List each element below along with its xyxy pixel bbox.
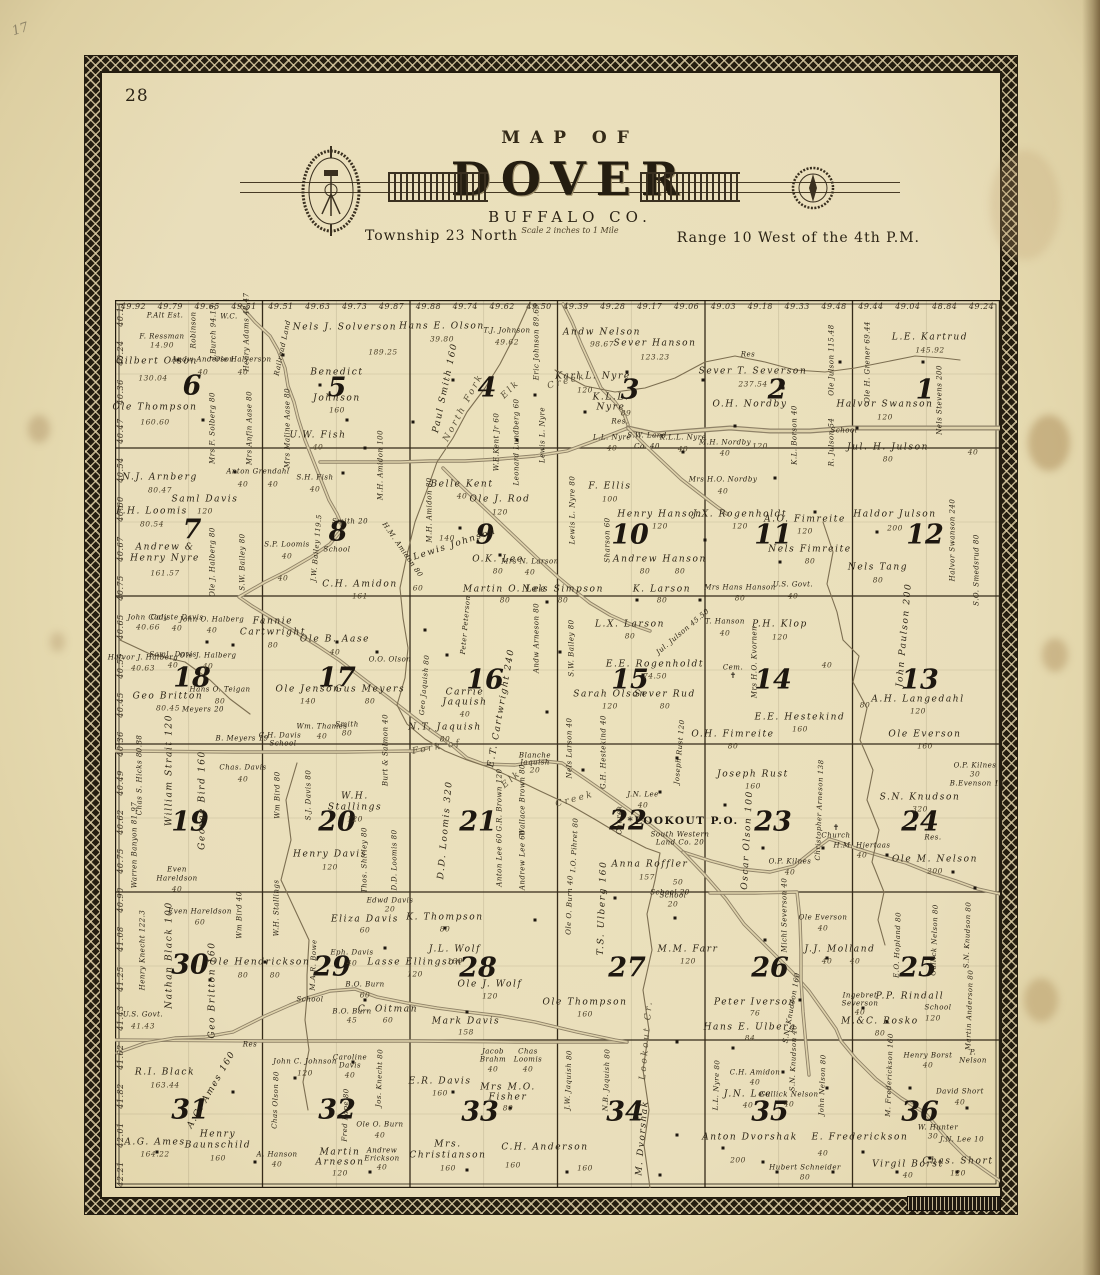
parcel-owner-label: Ole B. Aase: [300, 636, 370, 645]
parcel-owner-label: Mrs Hans Hanson: [704, 585, 776, 592]
acreage-label: 40.66: [136, 623, 160, 631]
parcel-owner-label: Hans E. Olson: [399, 323, 485, 332]
map-of-text: MAP OF: [501, 128, 639, 148]
parcel-owner-label: U.W. Fish: [290, 432, 347, 441]
parcel-owner-label: Henry Borst: [904, 1053, 953, 1060]
parcel-owner-label: Mrs Maline Aase 80: [285, 388, 292, 468]
acreage-label: 160: [792, 725, 808, 733]
acreage-label: 120: [910, 707, 926, 715]
edge-measurement: 40.75: [117, 575, 125, 600]
building-dot: [376, 651, 379, 654]
parcel-owner-label: J.J. Molland: [805, 946, 876, 955]
parcel-owner-label: R. Julson 54: [829, 418, 836, 467]
paper-stain: [990, 150, 1060, 260]
building-dot: [699, 599, 702, 602]
edge-measurement: 49.04: [895, 303, 920, 311]
acreage-label: 80: [873, 576, 884, 584]
acreage-label: 20: [668, 900, 679, 908]
acreage-label: 40: [903, 1171, 914, 1179]
parcel-owner-label: P.: [970, 1050, 977, 1057]
parcel-owner-label: A. Hanson: [256, 1152, 297, 1159]
parcel-owner-label: Ole Thompson: [543, 999, 628, 1008]
acreage-label: 41.43: [131, 1022, 155, 1030]
acreage-label: 80: [503, 1104, 514, 1112]
acreage-label: 120: [752, 442, 768, 450]
building-dot: [582, 769, 585, 772]
parcel-owner-label: Henry Nyre: [130, 555, 200, 564]
parcel-owner-label: Hubert Schneider: [769, 1165, 841, 1172]
parcel-owner-label: John O. Halberg: [180, 617, 245, 624]
acreage-label: 160: [505, 1161, 521, 1169]
acreage-label: 120: [482, 992, 498, 1000]
parcel-owner-label: Nels Simpson: [522, 586, 604, 595]
building-dot: [896, 1171, 899, 1174]
acreage-label: 40: [238, 775, 249, 783]
building-dot: [676, 1041, 679, 1044]
edge-measurement: 41.08: [117, 927, 125, 952]
acreage-label: 40: [784, 1100, 795, 1108]
parcel-owner-label: K. Larson: [633, 586, 691, 595]
edge-measurement: 41.62: [117, 1044, 125, 1069]
parcel-owner-label: P.H. Klop: [752, 621, 808, 630]
parcel-owner-label: Andrew Lee 60: [520, 830, 527, 890]
edge-measurement: 49.06: [674, 303, 699, 311]
parcel-owner-label: Haldor Julson: [853, 511, 936, 520]
acreage-label: 40: [720, 629, 731, 637]
acreage-label: 120: [680, 957, 696, 965]
building-dot: [814, 511, 817, 514]
parcel-owner-label: Nels Stevens 200: [937, 365, 944, 435]
scanned-atlas-page: 28 17 MAP OF DOVER BUFFALO CO.: [0, 0, 1100, 1275]
edge-measurement: 49.03: [711, 303, 736, 311]
acreage-label: 130.04: [138, 374, 167, 382]
parcel-owner-label: E.E. Hestekind: [755, 714, 846, 723]
parcel-owner-label: L.E. Kartrud: [892, 334, 968, 343]
parcel-owner-label: Nels Tang: [848, 564, 908, 573]
building-dot: [799, 999, 802, 1002]
parcel-owner-label: Ole Thompson: [113, 404, 198, 413]
acreage-label: 161.57: [150, 569, 179, 577]
parcel-owner-label: Warren Banyon 81.97: [132, 802, 139, 889]
building-dot: [459, 527, 462, 530]
parcel-owner-label: Ole J. Wolf: [458, 981, 523, 990]
parcel-owner-label: Robinson: [191, 311, 198, 348]
acreage-label: 60: [383, 1016, 394, 1024]
parcel-owner-label: Mrs M.O.: [480, 1084, 536, 1093]
building-dot: [774, 477, 777, 480]
parcel-owner-label: Baunschild: [185, 1142, 252, 1151]
paper-stain: [50, 632, 65, 652]
parcel-owner-label: Res.: [924, 835, 941, 842]
section-number: 32: [318, 1097, 356, 1124]
building-dot: [764, 939, 767, 942]
parcel-owner-label: K. Thompson: [406, 914, 483, 923]
parcel-owner-label: O.O. Olson: [369, 657, 412, 664]
parcel-owner-label: Hans O. Teigan: [189, 687, 250, 694]
parcel-owner-label: Meyers 20: [182, 707, 224, 714]
building-dot: [636, 1117, 639, 1120]
title-block: MAP OF DOVER BUFFALO CO. Townsh: [150, 100, 990, 270]
parcel-owner-label: Ole M. Nelson: [892, 856, 978, 865]
parcel-owner-label: Andrew: [367, 1148, 398, 1155]
parcel-owner-label: Mrs N. Larson: [501, 559, 558, 566]
section-number: 10: [611, 522, 649, 549]
paper-stain: [1042, 638, 1068, 672]
acreage-label: 163.44: [150, 1081, 179, 1089]
acreage-label: 120: [772, 633, 788, 641]
acreage-label: 80: [493, 567, 504, 575]
acreage-label: 20: [385, 905, 396, 913]
acreage-label: 40: [317, 732, 328, 740]
parcel-owner-label: George Bird 160: [199, 750, 208, 850]
parcel-owner-label: Chas. Davis: [219, 765, 266, 772]
parcel-owner-label: S.J. Davis 80: [306, 770, 313, 821]
ornament-bar-left: [388, 172, 488, 202]
acreage-label: 14.90: [150, 341, 174, 349]
building-dot: [412, 421, 415, 424]
acreage-label: 160: [917, 742, 933, 750]
acreage-label: 40: [172, 624, 183, 632]
parcel-owner-label: P.P. Rindall: [876, 993, 945, 1002]
parcel-owner-label: C.H. Anderson: [501, 1144, 588, 1153]
parcel-owner-label: Henry Knecht 122.3: [140, 910, 147, 991]
acreage-label: 60: [360, 991, 371, 999]
building-dot: [722, 1147, 725, 1150]
parcel-owner-label: Chas: [518, 1049, 538, 1056]
acreage-label: 80: [640, 567, 651, 575]
parcel-owner-label: Johnson: [313, 395, 361, 404]
parcel-owner-label: Res: [741, 352, 756, 359]
parcel-owner-label: M.H. Amidon 100: [378, 430, 385, 500]
acreage-label: 40: [850, 957, 861, 965]
acreage-label: 40: [785, 868, 796, 876]
acreage-label: 80: [728, 742, 739, 750]
acreage-label: 40: [268, 480, 279, 488]
acreage-label: 40: [347, 959, 358, 967]
scale-label: Scale 2 inches to 1 Mile: [521, 226, 618, 235]
acreage-label: 80.45: [156, 704, 180, 712]
acreage-label: 160: [432, 1089, 448, 1097]
edge-measurement: 49.28: [600, 303, 625, 311]
building-dot: [452, 1091, 455, 1094]
parcel-owner-label: Church: [821, 833, 850, 840]
parcel-owner-label: Halvor Swanson 240: [950, 499, 957, 582]
parcel-owner-label: G.H. Hestekind 40: [601, 715, 608, 789]
edge-measurement: 40.90: [117, 888, 125, 913]
acreage-label: 40: [377, 1163, 388, 1171]
acreage-label: 157: [639, 873, 655, 881]
acreage-label: 160: [447, 957, 463, 965]
acreage-label: 40: [638, 801, 649, 809]
acreage-label: 40: [788, 592, 799, 600]
acreage-label: 40: [272, 1160, 283, 1168]
acreage-label: 80: [268, 641, 279, 649]
building-dot: [369, 1171, 372, 1174]
building-dot: [762, 1161, 765, 1164]
acreage-label: 40: [198, 368, 209, 376]
parcel-owner-label: School: [297, 997, 324, 1004]
building-dot: [584, 411, 587, 414]
parcel-owner-label: Sharson 60: [605, 517, 612, 562]
parcel-owner-label: M.&C. Rosko: [841, 1018, 919, 1027]
edge-measurement: 49.48: [821, 303, 846, 311]
acreage-label: 30: [928, 1132, 939, 1140]
parcel-owner-label: Eric Johnson 89.60: [534, 304, 541, 380]
acreage-label: 160.60: [140, 418, 169, 426]
parcel-owner-label: U.S. Govt.: [123, 1012, 163, 1019]
acreage-label: 60: [195, 918, 206, 926]
acreage-label: 40: [238, 368, 249, 376]
section-number: 23: [754, 809, 792, 836]
parcel-owner-label: Gus Meyers: [335, 686, 405, 695]
parcel-owner-label: T.J. Johnson: [484, 328, 531, 335]
parcel-owner-label: Eph. Davis: [330, 950, 373, 957]
section-number: 33: [461, 1099, 499, 1126]
parcel-owner-label: N.J. Arnberg: [122, 474, 198, 483]
parcel-owner-label: W.H.: [341, 793, 369, 802]
parcel-owner-label: S.W. Bailey 80: [240, 533, 247, 590]
acreage-label: 80: [238, 971, 249, 979]
parcel-owner-label: F. Ellis: [588, 483, 631, 492]
parcel-owner-label: School: [324, 547, 351, 554]
parcel-owner-label: B.O. Burn: [345, 982, 384, 989]
building-dot: [566, 1171, 569, 1174]
paper-stain: [28, 415, 50, 443]
edge-measurement: 40.45: [117, 692, 125, 717]
parcel-owner-label: A.O. Fimreite: [764, 516, 846, 525]
acreage-label: 80: [365, 697, 376, 705]
acreage-label: 120: [297, 1069, 313, 1077]
acreage-label: 140: [439, 534, 455, 542]
parcel-owner-label: Sever Hanson: [613, 340, 696, 349]
acreage-label: 200: [887, 524, 903, 532]
section-number: 28: [459, 955, 497, 982]
acreage-label: 80: [657, 596, 668, 604]
parcel-owner-label: Stallings: [328, 804, 382, 813]
section-number: 21: [459, 809, 497, 836]
parcel-owner-label: U.S. Govt.: [773, 582, 813, 589]
building-dot: [704, 539, 707, 542]
acreage-label: 40: [457, 492, 468, 500]
parcel-owner-label: D.D. Loomis 80: [392, 829, 399, 890]
section-number: 12: [906, 522, 944, 549]
acreage-label: 40: [923, 1061, 934, 1069]
parcel-owner-label: Anton Grendahl: [226, 469, 289, 476]
parcel-owner-label: F.H. Loomis: [116, 508, 188, 517]
section-number: 14: [754, 667, 792, 694]
parcel-owner-label: Eliza Davis: [331, 916, 399, 925]
acreage-label: 60: [413, 584, 424, 592]
section-number: 30: [171, 952, 209, 979]
acreage-label: 40: [330, 648, 341, 656]
acreage-label: 40: [822, 957, 833, 965]
acreage-label: 160: [210, 1154, 226, 1162]
acreage-label: 160: [440, 1164, 456, 1172]
building-dot: [732, 1047, 735, 1050]
edge-measurement: 40.47: [117, 419, 125, 444]
parcel-owner-label: Geo Britton: [133, 693, 204, 702]
building-dot: [614, 897, 617, 900]
acreage-label: 40: [313, 443, 324, 451]
edge-measurement: 40.75: [117, 849, 125, 874]
acreage-label: 80.54: [140, 520, 164, 528]
parcel-owner-label: School: [925, 1005, 952, 1012]
acreage-label: 40: [238, 480, 249, 488]
parcel-owner-label: Leonard Lundberg 60: [514, 399, 521, 486]
building-dot: [839, 361, 842, 364]
parcel-owner-label: Anton Dvorshak: [702, 1134, 798, 1143]
parcel-owner-label: Henry: [200, 1131, 236, 1140]
parcel-owner-label: Ole Jenson: [275, 686, 340, 695]
edge-measurement: 40.65: [117, 614, 125, 639]
acreage-label: 120: [732, 522, 748, 530]
parcel-owner-label: School: [831, 428, 858, 435]
acreage-label: 76: [750, 1009, 761, 1017]
acreage-label: 120: [950, 1169, 966, 1177]
township-label: Township 23 North: [365, 228, 518, 244]
building-dot: [782, 387, 785, 390]
parcel-owner-label: M.H. Amidon 80: [427, 477, 434, 542]
acreage-label: 120: [322, 863, 338, 871]
parcel-owner-label: Wm Bird 40: [237, 891, 244, 938]
parcel-owner-label: Martin: [320, 1149, 361, 1158]
building-dot: [466, 1169, 469, 1172]
acreage-label: 20: [530, 766, 541, 774]
acreage-label: 120: [925, 1014, 941, 1022]
parcel-owner-label: Mrs Anfin Aase 80: [247, 391, 254, 465]
parcel-owner-label: Nels Larson 40: [567, 718, 574, 779]
parcel-owner-label: Andrew Hanson: [613, 556, 707, 565]
parcel-owner-label: E.R. Davis: [408, 1078, 471, 1087]
engraver-mark: [907, 1196, 1001, 1211]
acreage-label: 40: [822, 661, 833, 669]
parcel-owner-label: Even: [167, 867, 187, 874]
parcel-owner-label: Cartwright: [240, 629, 306, 638]
acreage-label: 80: [215, 697, 226, 705]
parcel-owner-label: Geo Britton 160: [209, 941, 218, 1038]
building-dot: [909, 1087, 912, 1090]
acreage-label: 40: [203, 662, 214, 670]
edge-measurement: 49.63: [305, 303, 330, 311]
parcel-owner-label: Nels J. Solverson: [293, 324, 397, 333]
compass-medallion-icon: [791, 166, 835, 214]
parcel-owner-label: Carrie: [446, 689, 485, 698]
edge-measurement: 42.21: [117, 1161, 125, 1186]
acreage-label: 80: [735, 594, 746, 602]
parcel-owner-label: Nels Fimreite: [768, 546, 851, 555]
parcel-owner-label: William Strait 120: [166, 714, 175, 826]
acreage-label: 89: [621, 409, 632, 417]
acreage-label: 40.63: [131, 664, 155, 672]
edge-measurement: 49.51: [268, 303, 293, 311]
acreage-label: 120: [332, 1169, 348, 1177]
parcel-owner-label: K.L. Borson 40: [792, 405, 799, 465]
section-number: 27: [608, 955, 646, 982]
parcel-owner-label: Saml Davis: [172, 496, 239, 505]
edge-measurement: 49.79: [158, 303, 183, 311]
edge-measurement: 49.73: [342, 303, 367, 311]
building-dot: [952, 871, 955, 874]
building-dot: [364, 447, 367, 450]
building-dot: [534, 394, 537, 397]
acreage-label: 237.54: [738, 380, 767, 388]
acreage-label: 40: [168, 661, 179, 669]
parcel-owner-label: Joseph Rust: [717, 771, 789, 780]
parcel-owner-label: C.H. Amidon: [322, 581, 398, 590]
building-dot: [724, 804, 727, 807]
parcel-owner-label: South Western: [651, 832, 710, 839]
edge-measurement: 49.88: [416, 303, 441, 311]
edge-measurement: 48.84: [932, 303, 957, 311]
acreage-label: 40: [375, 1131, 386, 1139]
acreage-label: 320: [912, 805, 928, 813]
acreage-label: 80: [805, 557, 816, 565]
parcel-owner-label: John C. Johnson: [273, 1059, 337, 1066]
parcel-owner-label: C.H. Amidon: [730, 1070, 781, 1077]
acreage-label: 50: [673, 878, 684, 886]
parcel-owner-label: David Short: [936, 1089, 984, 1096]
parcel-owner-label: Michl Severson 40: [782, 878, 789, 953]
building-dot: [342, 472, 345, 475]
acreage-label: 120: [652, 522, 668, 530]
parcel-owner-label: Gullick Nelson: [759, 1092, 818, 1099]
acreage-label: 80: [860, 701, 871, 709]
parcel-owner-label: J.N. Lee: [627, 792, 659, 799]
acreage-label: 158: [458, 1028, 474, 1036]
acreage-label: 45: [347, 1016, 358, 1024]
parcel-owner-label: Sever Rud: [634, 691, 696, 700]
building-dot: [384, 947, 387, 950]
parcel-owner-label: M.H. Nordby: [699, 440, 751, 447]
acreage-label: 40: [955, 1098, 966, 1106]
building-dot: [446, 654, 449, 657]
county-subtitle: BUFFALO CO.: [488, 208, 652, 226]
acreage-label: 30: [970, 770, 981, 778]
parcel-owner-label: O.H. Nordby: [712, 401, 787, 410]
building-dot: [534, 919, 537, 922]
acreage-label: 40: [607, 444, 618, 452]
acreage-label: 40: [172, 885, 183, 893]
acreage-label: 40: [743, 1101, 754, 1109]
acreage-label: 40: [488, 1065, 499, 1073]
parcel-owner-label: Nathan Black 100: [166, 901, 175, 1009]
building-dot: [676, 1134, 679, 1137]
parcel-owner-label: N.T. Jaquish: [408, 724, 482, 733]
acreage-label: 40: [278, 574, 289, 582]
acreage-label: 80: [500, 596, 511, 604]
acreage-label: 200: [730, 1156, 746, 1164]
acreage-label: 74.50: [643, 672, 667, 680]
acreage-label: 80: [875, 1029, 886, 1037]
parcel-owner-label: B.Evenson 10: [950, 781, 1005, 788]
acreage-label: 80: [660, 702, 671, 710]
parcel-owner-label: Burt & Salmon 40: [383, 714, 390, 786]
acreage-label: 84: [745, 1034, 756, 1042]
building-dot: [702, 379, 705, 382]
building-dot: [232, 644, 235, 647]
building-dot: [782, 1071, 785, 1074]
acreage-label: 80: [342, 729, 353, 737]
parcel-owner-label: W.C.: [220, 314, 238, 321]
parcel-owner-label: Anna Roffler: [612, 861, 689, 870]
parcel-owner-label: R.I. Black: [135, 1069, 195, 1078]
parcel-owner-label: Anton Lee 60: [497, 833, 504, 886]
building-dot: [546, 711, 549, 714]
acreage-label: 40: [345, 1071, 356, 1079]
section-number: 36: [901, 1099, 939, 1126]
section-number: 13: [901, 667, 939, 694]
parcel-owner-label: Arneson: [316, 1159, 365, 1168]
